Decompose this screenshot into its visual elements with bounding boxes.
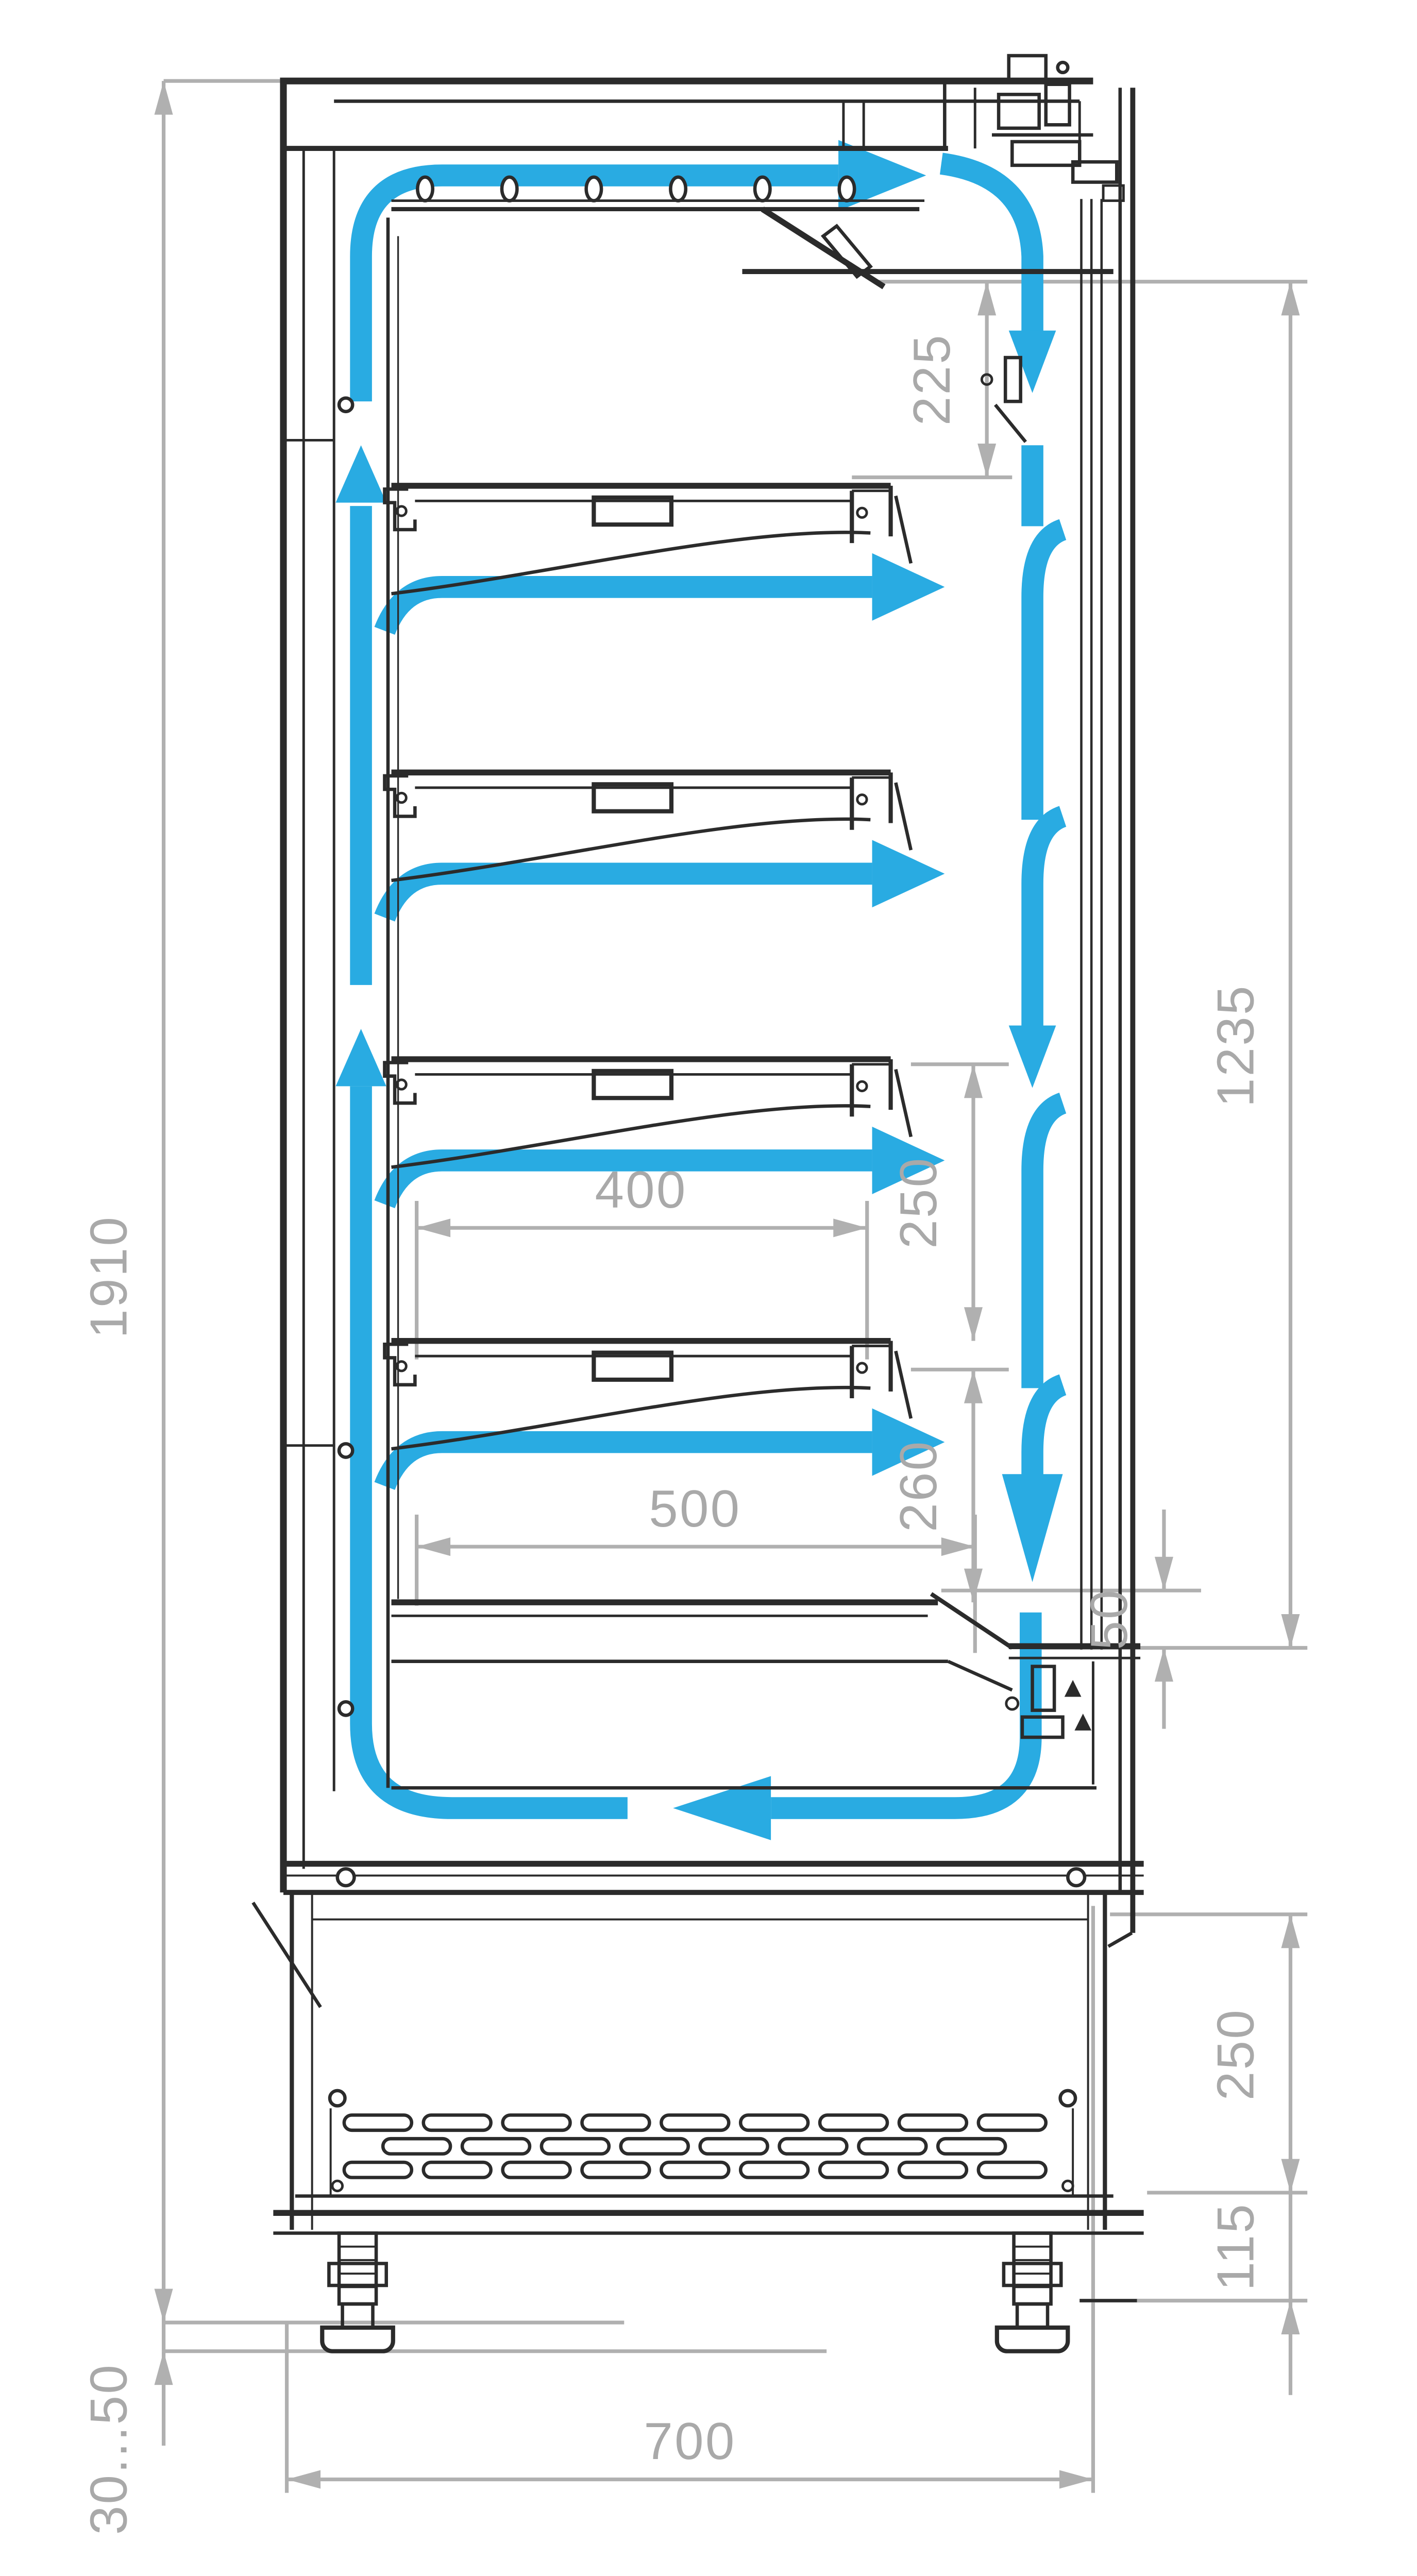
airflow-up-arrowhead-1	[335, 1029, 386, 1086]
label-overall-depth: 700	[644, 2412, 736, 2470]
label-foot-adjustment: 30...50	[79, 2363, 138, 2535]
air-deflector	[763, 209, 884, 287]
label-lowest-shelf-gap: 260	[889, 1440, 948, 1532]
label-air-curtain-drop: 1235	[1206, 984, 1264, 1107]
label-overall-height: 1910	[79, 1215, 138, 1338]
ventilation-grille	[344, 2115, 1046, 2177]
foot-right	[997, 2233, 1068, 2351]
section-break-line	[253, 1903, 320, 2007]
shelves	[384, 486, 910, 1449]
airflow-return-arrowhead	[673, 1776, 771, 1840]
drawing-stage: 1910 30...50 225 1235 250 260 400 500 50…	[0, 0, 1417, 2576]
rear-wall	[283, 81, 398, 1892]
airflow-curtain-bottom-arrowhead	[1002, 1474, 1063, 1582]
machine-compartment	[253, 1892, 1144, 2300]
label-shelf-pitch: 250	[889, 1157, 948, 1249]
label-plinth-height: 115	[1206, 2202, 1264, 2291]
cabinet-bottom-band	[283, 1864, 1144, 1893]
label-compartment-height: 250	[1206, 2008, 1264, 2100]
display-case-cross-section-diagram: 1910 30...50 225 1235 250 260 400 500 50…	[0, 0, 1417, 2576]
label-top-clearance: 225	[902, 333, 961, 426]
label-shelf-depth: 400	[595, 1160, 687, 1219]
cabinet-structure	[253, 56, 1144, 2351]
label-return-gap: 50	[1079, 1588, 1138, 1650]
airflow-up-arrowhead-2	[335, 445, 386, 502]
label-deck-depth: 500	[649, 1479, 741, 1538]
adjustable-feet	[322, 2233, 1068, 2351]
foot-left	[322, 2233, 393, 2351]
